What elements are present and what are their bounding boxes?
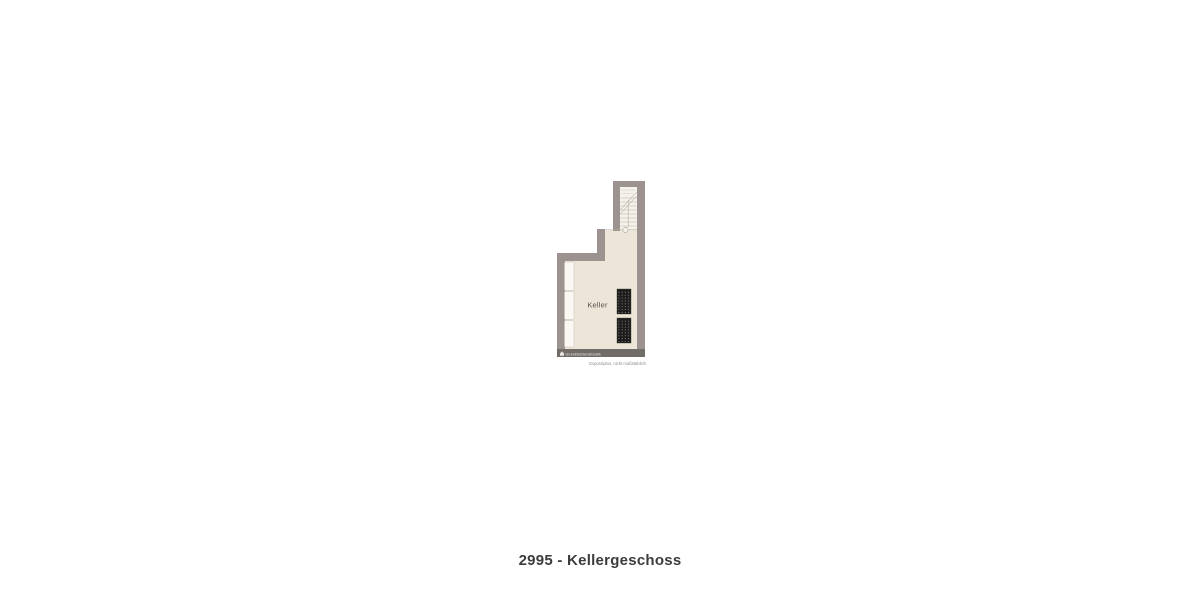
watermark-text: GrundrissDienstGrafik — [566, 352, 602, 356]
page: Keller GrundrissDienstGrafik Exposéplan,… — [0, 0, 1200, 600]
window-segment — [565, 262, 575, 291]
watermark-bar: GrundrissDienstGrafik — [557, 349, 645, 357]
floorplan-image: Keller GrundrissDienstGrafik Exposéplan,… — [557, 181, 647, 369]
disclaimer-text: Exposéplan, nicht maßstäblich — [589, 361, 646, 366]
window-segment — [565, 292, 575, 320]
floor-caption: 2995 - Kellergeschoss — [0, 552, 1200, 569]
storage-unit-grille — [618, 319, 630, 342]
room-label: Keller — [587, 301, 608, 310]
stair-newel-post — [623, 227, 628, 232]
storage-unit-grille — [618, 290, 630, 313]
window-segment — [565, 321, 575, 348]
window-band — [565, 262, 575, 347]
